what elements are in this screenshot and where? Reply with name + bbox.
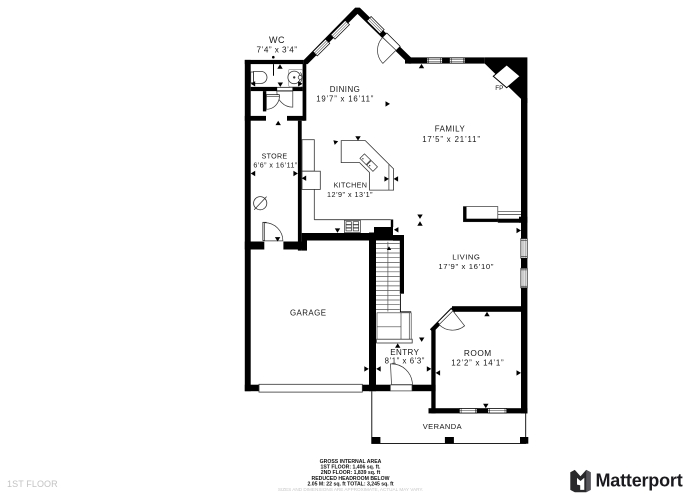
svg-text:ROOM: ROOM — [464, 348, 492, 358]
svg-text:SIZES AND DIMENSIONS ARE APPRO: SIZES AND DIMENSIONS ARE APPROXIMATE, AC… — [278, 487, 423, 492]
svg-text:GARAGE: GARAGE — [290, 309, 326, 318]
svg-text:Matterport: Matterport — [596, 471, 683, 491]
svg-text:12’2” x 14’1”: 12’2” x 14’1” — [451, 359, 504, 368]
svg-text:6’6” x 16’11”: 6’6” x 16’11” — [253, 162, 298, 170]
svg-text:17’9” x 16’10”: 17’9” x 16’10” — [438, 262, 494, 271]
svg-text:WC: WC — [269, 35, 285, 45]
svg-text:FAMILY: FAMILY — [435, 125, 466, 134]
svg-text:VERANDA: VERANDA — [423, 422, 462, 431]
svg-text:KITCHEN: KITCHEN — [334, 180, 368, 189]
svg-text:19’7” x 16’11”: 19’7” x 16’11” — [316, 94, 374, 103]
svg-text:1ST FLOOR: 1ST FLOOR — [7, 479, 58, 489]
svg-text:DINING: DINING — [330, 85, 361, 94]
svg-text:7’4” x 3’4”: 7’4” x 3’4” — [257, 45, 298, 54]
svg-text:17’5” x 21’11”: 17’5” x 21’11” — [422, 135, 481, 144]
svg-text:12’9” x 13’1”: 12’9” x 13’1” — [327, 190, 373, 199]
svg-text:LIVING: LIVING — [452, 253, 480, 262]
svg-text:8’1” x 6’3”: 8’1” x 6’3” — [385, 356, 425, 365]
svg-text:STORE: STORE — [262, 153, 288, 161]
svg-text:FP: FP — [495, 85, 503, 92]
